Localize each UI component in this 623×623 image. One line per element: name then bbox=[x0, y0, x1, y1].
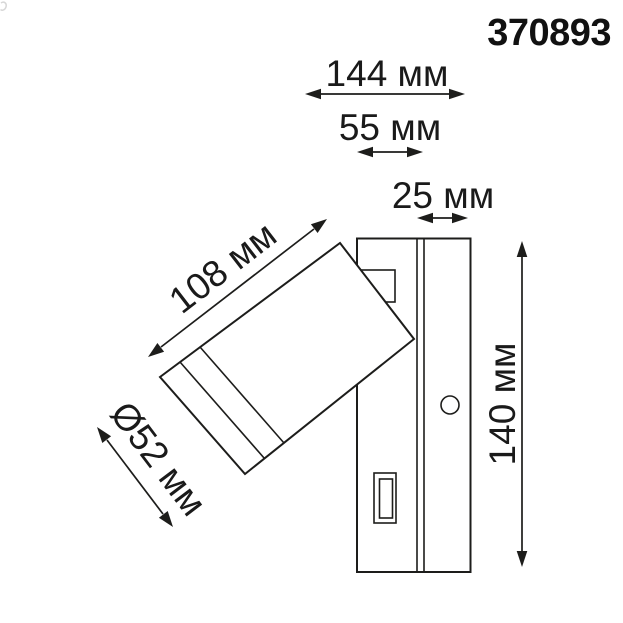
usb-port-inner bbox=[380, 479, 393, 518]
arrowhead-right bbox=[407, 147, 423, 158]
dimension-total-width: 144 мм bbox=[305, 53, 465, 99]
round-button bbox=[441, 396, 459, 414]
arrowhead-right bbox=[449, 89, 465, 100]
arrowhead-left bbox=[357, 147, 373, 158]
arrowhead-lower-right bbox=[159, 511, 173, 527]
diagram-page: 144 мм 55 мм 25 мм 108 мм Ø5 bbox=[0, 0, 623, 623]
arrowhead-upper-right bbox=[311, 219, 327, 233]
technical-drawing-canvas: 144 мм 55 мм 25 мм 108 мм Ø5 bbox=[0, 0, 623, 623]
dimension-base-height: 140 мм bbox=[482, 241, 527, 567]
dimension-base-depth-label: 25 мм bbox=[392, 175, 494, 216]
dimension-bracket-width-label: 55 мм bbox=[339, 107, 441, 148]
dimension-total-width-label: 144 мм bbox=[326, 53, 449, 94]
dimension-bracket-width: 55 мм bbox=[339, 107, 441, 157]
dimension-base-height-label: 140 мм bbox=[482, 343, 523, 466]
corner-artifact bbox=[1, 2, 7, 10]
product-code: 370893 bbox=[487, 12, 611, 54]
arrowhead-bottom bbox=[517, 551, 528, 567]
arrowhead-lower-left bbox=[148, 343, 164, 357]
arrowhead-upper-left bbox=[97, 427, 111, 443]
arrowhead-left bbox=[305, 89, 321, 100]
arrowhead-top bbox=[517, 241, 528, 257]
dimension-base-depth: 25 мм bbox=[392, 175, 494, 223]
